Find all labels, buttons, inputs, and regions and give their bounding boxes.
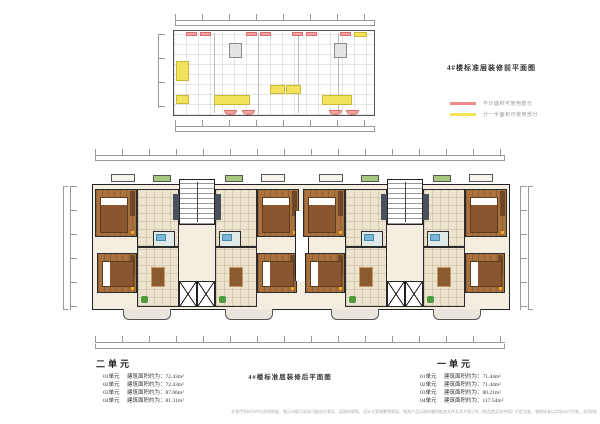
bed xyxy=(470,197,498,233)
dining-room xyxy=(137,247,179,307)
highlight-halfarea xyxy=(322,95,352,105)
highlight-noarea xyxy=(260,32,271,36)
unit-area-value: 建筑面积约为：80.21m² xyxy=(444,390,501,396)
unit2-area-list: 01单元建筑面积约为：72.43m² 02单元建筑面积约为：72.43m² 03… xyxy=(103,373,184,405)
dimension-line-main-bottom-total xyxy=(95,344,505,349)
legend-swatch-yellow xyxy=(450,113,476,116)
unit-area-value: 建筑面积约为：71.44m² xyxy=(444,382,501,388)
dining-room xyxy=(423,247,465,307)
unit-label: 03单元 xyxy=(103,389,127,397)
elevator-icon xyxy=(405,281,423,307)
legend-label: 计一半面积可使用部分 xyxy=(483,111,538,118)
highlight-noarea xyxy=(306,32,317,36)
elevator-icon xyxy=(387,281,405,307)
balcony xyxy=(433,309,481,320)
balcony xyxy=(225,309,273,320)
roof-box xyxy=(111,174,135,182)
after-building xyxy=(92,184,510,310)
highlight-noarea xyxy=(200,32,211,36)
dimension-line-left xyxy=(158,34,165,108)
unit-label: 02单元 xyxy=(420,381,444,389)
roof-box xyxy=(319,174,343,182)
legend-row-halfarea: 计一半面积可使用部分 xyxy=(450,109,538,120)
balcony xyxy=(123,309,171,320)
elevator-bank xyxy=(387,281,423,307)
unit1-heading: 一单元 xyxy=(437,357,473,370)
highlight-balcony-arc xyxy=(329,110,342,115)
bedroom xyxy=(305,253,345,293)
highlight-halfarea xyxy=(286,85,301,94)
before-plan-title: 4#楼标准层装修前平面图 xyxy=(447,63,536,73)
unit-area-row: 01单元建筑面积约为：72.43m² xyxy=(103,373,184,381)
plant xyxy=(219,296,226,303)
unit-area-value: 建筑面积约为：72.43m² xyxy=(127,382,184,388)
unit-area-value: 建筑面积约为：117.54m² xyxy=(444,398,503,404)
dining-table xyxy=(151,267,165,287)
unit-label: 01单元 xyxy=(420,373,444,381)
bedroom xyxy=(95,189,137,237)
stair-core xyxy=(229,43,242,58)
bed xyxy=(470,261,502,287)
unit-label: 04单元 xyxy=(103,397,127,405)
bed xyxy=(308,197,336,233)
highlight-halfarea xyxy=(176,95,189,104)
bed xyxy=(102,261,134,287)
dimension-line-bottom xyxy=(175,120,375,127)
unit-area-value: 建筑面积约为：72.43m² xyxy=(127,374,184,380)
highlight-noarea xyxy=(186,32,197,36)
dimension-line-main-top-total xyxy=(95,156,505,161)
floorplan-sheet: 4#楼标准层装修前平面图 不计面积可使用部分 计一半面积可使用部分 xyxy=(0,0,600,424)
after-plan-title: 4#楼标准层装修后平面图 xyxy=(210,371,370,381)
legend: 不计面积可使用部分 计一半面积可使用部分 xyxy=(450,98,538,120)
bed xyxy=(262,197,290,233)
stair-core xyxy=(387,179,423,225)
elevator-icon xyxy=(179,281,197,307)
highlight-noarea xyxy=(340,32,351,36)
balcony xyxy=(331,309,379,320)
stair-core xyxy=(179,179,215,225)
dining-table xyxy=(359,267,373,287)
unit-area-row: 02单元建筑面积约为：71.44m² xyxy=(420,381,503,389)
highlight-halfarea xyxy=(354,32,367,37)
bed xyxy=(100,197,128,233)
apartment-unit xyxy=(93,185,301,309)
highlight-noarea xyxy=(246,32,257,36)
bedroom xyxy=(97,253,137,293)
highlight-balcony-arc xyxy=(346,110,359,115)
bedroom xyxy=(257,189,299,237)
dining-room xyxy=(215,247,257,307)
roof-box xyxy=(261,174,285,182)
apartment-unit xyxy=(301,185,509,309)
unit-area-row: 04单元建筑面积约为：81.31m² xyxy=(103,397,184,405)
highlight-balcony-arc xyxy=(242,110,255,115)
dimension-line-main-left xyxy=(70,186,77,310)
dining-table xyxy=(229,267,243,287)
dimension-line-main-right-total xyxy=(528,186,533,310)
unit-label: 02单元 xyxy=(103,381,127,389)
bed xyxy=(310,261,342,287)
wall-line xyxy=(298,33,299,113)
footer-disclaimer: 本宣传资料不作为合同依据，图示内容与实际可能存在差异；因政府规划、设计方案调整等… xyxy=(231,409,597,415)
highlight-halfarea xyxy=(176,61,189,81)
dimension-line-main-left-total xyxy=(63,186,68,310)
highlight-halfarea xyxy=(214,95,250,105)
bedroom xyxy=(257,253,297,293)
highlight-halfarea xyxy=(270,85,285,94)
legend-row-noarea: 不计面积可使用部分 xyxy=(450,98,538,109)
unit-area-value: 建筑面积约为：81.31m² xyxy=(127,398,184,404)
planter-box xyxy=(225,175,243,182)
dimension-line-main-bottom xyxy=(95,336,505,343)
unit2-heading: 二单元 xyxy=(96,357,132,370)
highlight-noarea xyxy=(292,32,303,36)
legend-swatch-red xyxy=(450,102,476,105)
unit-area-row: 01单元建筑面积约为：71.44m² xyxy=(420,373,503,381)
elevator-bank xyxy=(179,281,215,307)
plant xyxy=(141,296,148,303)
unit-area-row: 03单元建筑面积约为：87.06m² xyxy=(103,389,184,397)
bedroom xyxy=(465,189,507,237)
wall-line xyxy=(258,33,259,113)
planter-box xyxy=(361,175,379,182)
dimension-line-main-top xyxy=(95,149,505,156)
dimension-line-top xyxy=(175,14,375,21)
bedroom xyxy=(465,253,505,293)
unit-area-row: 02单元建筑面积约为：72.43m² xyxy=(103,381,184,389)
dimension-line-bottom-total xyxy=(175,127,375,132)
unit-label: 03单元 xyxy=(420,389,444,397)
plant xyxy=(349,296,356,303)
plant xyxy=(427,296,434,303)
unit-label: 01单元 xyxy=(103,373,127,381)
dining-room xyxy=(345,247,387,307)
bathroom xyxy=(361,231,383,247)
legend-label: 不计面积可使用部分 xyxy=(483,100,533,107)
highlight-balcony-arc xyxy=(224,110,237,115)
kitchen-counter xyxy=(215,194,221,220)
bedroom xyxy=(303,189,345,237)
planter-box xyxy=(153,175,171,182)
unit-area-row: 04单元建筑面积约为：117.54m² xyxy=(420,397,503,405)
dimension-line-main-right xyxy=(520,186,527,310)
stair-core xyxy=(334,43,347,58)
bed xyxy=(262,261,294,287)
unit-area-value: 建筑面积约为：71.44m² xyxy=(444,374,501,380)
unit-area-value: 建筑面积约为：87.06m² xyxy=(127,390,184,396)
planter-box xyxy=(433,175,451,182)
roof-box xyxy=(469,174,493,182)
bathroom xyxy=(153,231,175,247)
dimension-line-top-total xyxy=(175,21,375,26)
dining-table xyxy=(437,267,451,287)
elevator-icon xyxy=(197,281,215,307)
kitchen-counter xyxy=(423,194,429,220)
unit-area-row: 03单元建筑面积约为：80.21m² xyxy=(420,389,503,397)
unit1-area-list: 01单元建筑面积约为：71.44m² 02单元建筑面积约为：71.44m² 03… xyxy=(420,373,503,405)
before-building-outline xyxy=(173,30,375,116)
bathroom xyxy=(427,231,449,247)
unit-label: 04单元 xyxy=(420,397,444,405)
bathroom xyxy=(219,231,241,247)
